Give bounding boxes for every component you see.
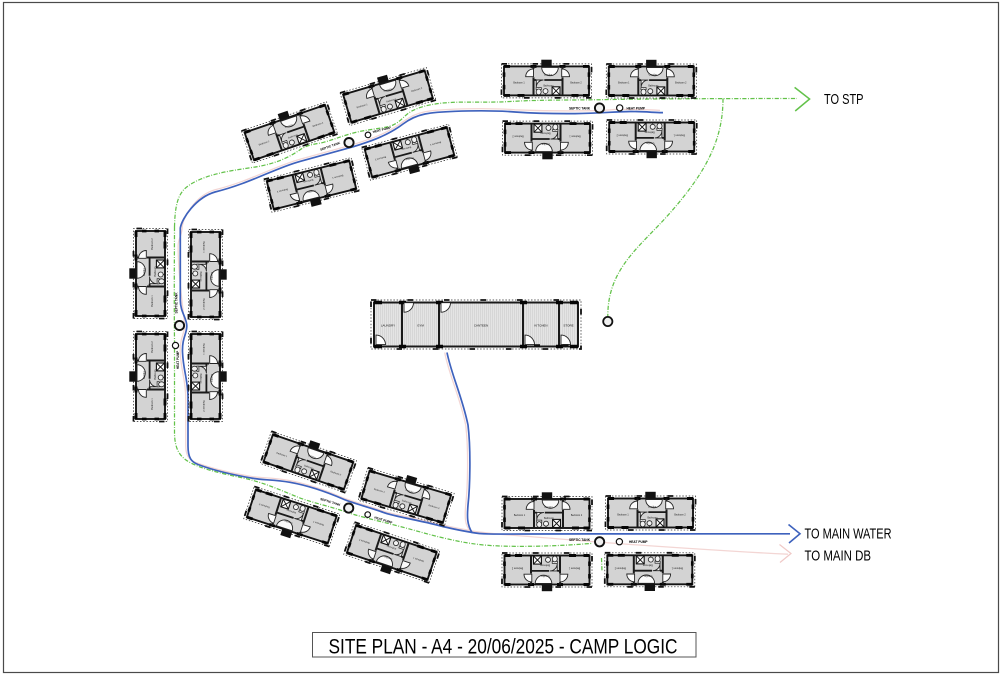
svg-text:TO MAIN DB: TO MAIN DB: [805, 548, 872, 564]
svg-text:LAUNDRY: LAUNDRY: [381, 324, 395, 328]
svg-text:HEAT PUMP: HEAT PUMP: [629, 540, 648, 544]
svg-text:HEAT PUMP: HEAT PUMP: [627, 107, 646, 111]
svg-text:SEPTIC TANK: SEPTIC TANK: [569, 106, 591, 110]
svg-text:KITCHEN: KITCHEN: [534, 324, 547, 328]
svg-text:HEAT PUMP: HEAT PUMP: [176, 350, 180, 369]
svg-text:SEPTIC TANK: SEPTIC TANK: [569, 538, 591, 542]
svg-text:CANTEEN: CANTEEN: [474, 324, 488, 328]
svg-text:TO STP: TO STP: [824, 92, 864, 108]
svg-text:SEPTIC TANK: SEPTIC TANK: [175, 292, 179, 314]
svg-text:STORE: STORE: [563, 324, 573, 328]
svg-text:SITE PLAN - A4 - 20/06/2025 -: SITE PLAN - A4 - 20/06/2025 - CAMP LOGIC: [329, 636, 678, 659]
svg-text:TO MAIN WATER: TO MAIN WATER: [805, 527, 892, 543]
svg-text:GYM: GYM: [417, 324, 424, 328]
